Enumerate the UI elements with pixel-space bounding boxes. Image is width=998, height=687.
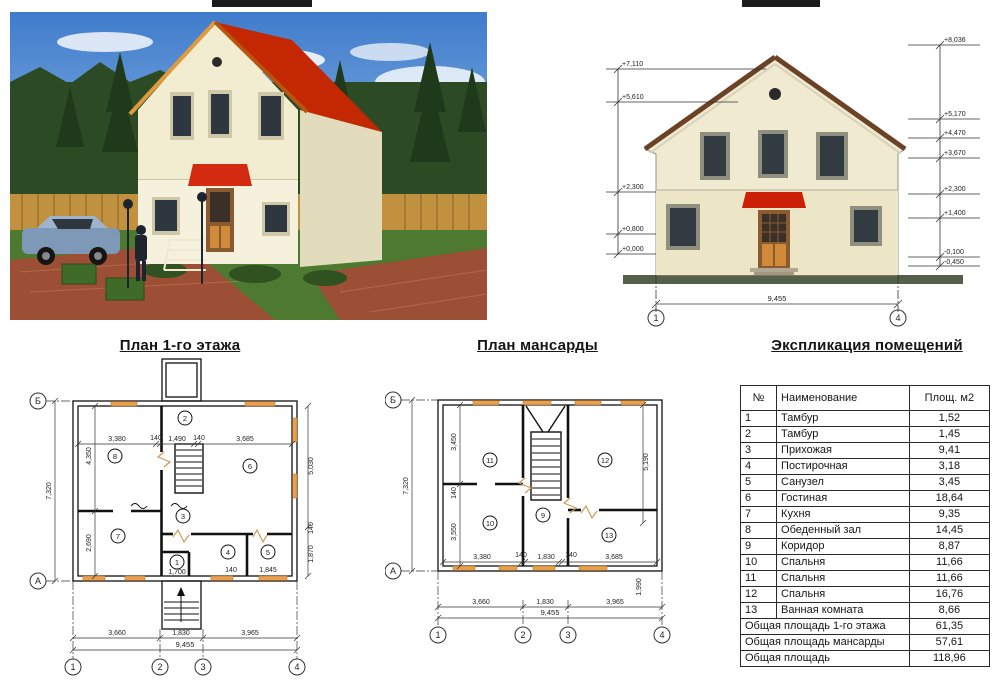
cell-name: Спальня <box>777 587 910 603</box>
attic-stairs <box>526 406 565 500</box>
room-number: 3 <box>181 512 185 521</box>
table-row: 5Санузел3,45 <box>741 475 990 491</box>
elev-mark: +8,036 <box>944 37 966 44</box>
cell-area: 14,45 <box>909 523 989 539</box>
room-number: 13 <box>605 531 613 540</box>
table-total-row: Общая площадь118,96 <box>741 651 990 667</box>
cell-name: Гостиная <box>777 491 910 507</box>
dim-label: 3,660 <box>472 599 490 606</box>
dim-label: 1,830 <box>537 554 555 561</box>
cell-num: 4 <box>741 459 777 475</box>
cropped-title-left <box>212 0 312 7</box>
axis-number: 1 <box>70 662 75 672</box>
cell-area: 11,66 <box>909 555 989 571</box>
room-number: 12 <box>601 456 609 465</box>
facade-door <box>758 210 790 268</box>
axis-number: 4 <box>659 630 664 640</box>
photo-3d-render <box>10 12 487 325</box>
axis-number: 1 <box>653 313 658 323</box>
elev-mark: +2,300 <box>622 184 644 191</box>
cell-name: Постирочная <box>777 459 910 475</box>
elev-mark: +7,110 <box>622 61 643 68</box>
cell-area: 8,66 <box>909 603 989 619</box>
dim-label: 1,490 <box>168 436 186 443</box>
dim-label: 1,845 <box>259 567 277 574</box>
elev-mark: +3,670 <box>944 150 966 157</box>
cell-name: Прихожая <box>777 443 910 459</box>
dim-label: 9,455 <box>176 640 195 649</box>
window-markers <box>453 401 645 571</box>
attic-walls <box>438 400 662 571</box>
axis-number: 4 <box>294 662 299 672</box>
attic-plan: 9 10 11 12 13 7,320 3,450 140 3,550 5,19… <box>385 360 690 660</box>
cell-area: 18,64 <box>909 491 989 507</box>
total-value: 118,96 <box>909 651 989 667</box>
cell-area: 3,18 <box>909 459 989 475</box>
dim-label: 1,990 <box>636 578 643 596</box>
axis-number: 3 <box>200 662 205 672</box>
cell-area: 8,87 <box>909 539 989 555</box>
cell-num: 5 <box>741 475 777 491</box>
elev-mark: +5,170 <box>944 111 966 118</box>
cell-area: 1,45 <box>909 427 989 443</box>
elev-mark: +2,300 <box>944 186 966 193</box>
col-header-num: № <box>741 386 777 411</box>
table-row: 8Обеденный зал14,45 <box>741 523 990 539</box>
dim-label: 140 <box>225 567 237 574</box>
attic-rooms: 9 10 11 12 13 <box>483 453 616 542</box>
dim-label: 140 <box>308 522 315 534</box>
table-row: 11Спальня11,66 <box>741 571 990 587</box>
cell-num: 8 <box>741 523 777 539</box>
table-row: 1Тамбур1,52 <box>741 411 990 427</box>
explication-table: № Наименование Площ. м2 1Тамбур1,52 2Там… <box>740 385 990 667</box>
dim-label: 2,690 <box>86 534 93 552</box>
room-number: 10 <box>486 519 494 528</box>
axis-number: 2 <box>157 662 162 672</box>
cell-name: Санузел <box>777 475 910 491</box>
table-row: 4Постирочная3,18 <box>741 459 990 475</box>
total-value: 61,35 <box>909 619 989 635</box>
dim-label: 3,660 <box>108 630 126 637</box>
dim-label: 140 <box>150 435 162 442</box>
dim-label: 3,965 <box>606 599 624 606</box>
dim-label: 7,320 <box>403 477 410 495</box>
elevation-labels-right: +8,036 +5,170 +4,470 +3,670 +2,300 +1,40… <box>944 37 966 266</box>
elev-mark: -0,450 <box>944 259 964 266</box>
axis-letter: Б <box>35 396 41 406</box>
dim-label: 1,870 <box>308 545 315 563</box>
dim-label: 9,455 <box>541 608 560 617</box>
table-row: 12Спальня16,76 <box>741 587 990 603</box>
cell-num: 3 <box>741 443 777 459</box>
table-row: 3Прихожая9,41 <box>741 443 990 459</box>
axis-number: 3 <box>565 630 570 640</box>
dim-label: 1,700 <box>168 569 186 576</box>
dim-label: 4,350 <box>86 447 93 465</box>
cell-num: 12 <box>741 587 777 603</box>
attic-windows <box>170 90 284 140</box>
facade-width-label: 9,455 <box>768 294 787 303</box>
cell-name: Тамбур <box>777 427 910 443</box>
axis-number: 4 <box>895 313 900 323</box>
cell-name: Тамбур <box>777 411 910 427</box>
dim-label: 3,685 <box>605 554 623 561</box>
cell-area: 3,45 <box>909 475 989 491</box>
total-label: Общая площадь мансарды <box>741 635 910 651</box>
facade-drawing: +7,110 +5,610 +2,300 +0,800 +0,000 +8,03… <box>588 12 993 332</box>
table-header-row: № Наименование Площ. м2 <box>741 386 990 411</box>
total-label: Общая площадь <box>741 651 910 667</box>
photo-3d-scene <box>10 12 487 320</box>
room-number: 4 <box>226 548 230 557</box>
elev-mark: +5,610 <box>622 94 644 101</box>
attic-axes: 1 2 3 4 Б А <box>385 392 670 643</box>
elev-mark: +4,470 <box>944 130 966 137</box>
elev-mark: +0,800 <box>622 226 644 233</box>
table-row: 6Гостиная18,64 <box>741 491 990 507</box>
elev-mark: -0,100 <box>944 249 964 256</box>
explication-section: Экспликация помещений № Наименование Пло… <box>740 337 994 667</box>
room-number: 11 <box>486 456 494 465</box>
dim-label: 3,685 <box>236 436 254 443</box>
room-number: 9 <box>541 511 545 520</box>
facade-house <box>645 57 905 275</box>
facade-awning <box>742 192 806 208</box>
axis-number: 1 <box>435 630 440 640</box>
dim-label: 140 <box>565 552 577 559</box>
cell-num: 11 <box>741 571 777 587</box>
ground-strip <box>623 275 963 284</box>
total-label: Общая площадь 1-го этажа <box>741 619 910 635</box>
facade-attic-windows <box>700 130 848 180</box>
elev-mark: +0,000 <box>622 246 644 253</box>
cell-name: Кухня <box>777 507 910 523</box>
cropped-title-right <box>742 0 820 7</box>
elev-mark: +1,400 <box>944 210 966 217</box>
dim-label: 3,450 <box>451 433 458 451</box>
table-row: 10Спальня11,66 <box>741 555 990 571</box>
table-total-row: Общая площадь мансарды57,61 <box>741 635 990 651</box>
explication-title: Экспликация помещений <box>740 337 994 354</box>
cell-area: 1,52 <box>909 411 989 427</box>
cell-area: 9,35 <box>909 507 989 523</box>
total-value: 57,61 <box>909 635 989 651</box>
attic-section: План мансарды <box>385 337 690 665</box>
cell-name: Спальня <box>777 555 910 571</box>
attic-bottom-dims <box>401 400 665 626</box>
entrance-awning <box>188 164 252 186</box>
cell-area: 9,41 <box>909 443 989 459</box>
dim-label: 3,550 <box>451 523 458 541</box>
floor1-rooms: 1 2 3 4 5 6 7 8 <box>108 411 275 569</box>
axis-letter: Б <box>390 395 396 405</box>
room-number: 2 <box>183 414 187 423</box>
floor1-section: План 1-го этажа <box>25 337 335 686</box>
room-number: 7 <box>116 532 120 541</box>
floor1-walls <box>73 359 297 629</box>
cell-num: 9 <box>741 539 777 555</box>
cell-num: 2 <box>741 427 777 443</box>
dim-label: 5,030 <box>308 457 315 475</box>
dim-label: 3,965 <box>241 630 259 637</box>
room-number: 6 <box>248 462 252 471</box>
cell-num: 7 <box>741 507 777 523</box>
elevation-labels-left: +7,110 +5,610 +2,300 +0,800 +0,000 <box>622 61 644 253</box>
dim-label: 1,830 <box>536 599 554 606</box>
cell-area: 11,66 <box>909 571 989 587</box>
floor1-plan: 1 2 3 4 5 6 7 8 3,380 140 1,490 140 <box>25 356 335 681</box>
floor1-partitions <box>78 406 292 576</box>
cell-num: 10 <box>741 555 777 571</box>
col-header-name: Наименование <box>777 386 910 411</box>
axis-number: 2 <box>520 630 525 640</box>
gable-vent <box>769 88 781 100</box>
attic-dim-lines <box>409 397 660 574</box>
room-number: 1 <box>175 558 179 567</box>
cell-name: Спальня <box>777 571 910 587</box>
break-symbols <box>131 504 187 509</box>
table-row: 7Кухня9,35 <box>741 507 990 523</box>
cell-name: Ванная комната <box>777 603 910 619</box>
dim-label: 140 <box>451 487 458 499</box>
dim-label: 3,380 <box>473 554 491 561</box>
dim-label: 1,830 <box>172 630 190 637</box>
table-row: 2Тамбур1,45 <box>741 427 990 443</box>
cell-num: 1 <box>741 411 777 427</box>
dim-label: 140 <box>515 552 527 559</box>
dim-label: 140 <box>193 435 205 442</box>
cell-name: Обеденный зал <box>777 523 910 539</box>
floor1-title: План 1-го этажа <box>25 337 335 354</box>
room-number: 8 <box>113 452 117 461</box>
cell-num: 6 <box>741 491 777 507</box>
attic-title: План мансарды <box>385 337 690 354</box>
table-total-row: Общая площадь 1-го этажа61,35 <box>741 619 990 635</box>
table-row: 13Ванная комната8,66 <box>741 603 990 619</box>
col-header-area: Площ. м2 <box>909 386 989 411</box>
room-number: 5 <box>266 548 270 557</box>
table-row: 9Коридор8,87 <box>741 539 990 555</box>
dim-label: 7,320 <box>46 482 53 500</box>
dim-label: 3,380 <box>108 436 126 443</box>
cell-name: Коридор <box>777 539 910 555</box>
axis-letter: А <box>35 576 41 586</box>
dim-label: 5,190 <box>643 453 650 471</box>
cell-num: 13 <box>741 603 777 619</box>
cell-area: 16,76 <box>909 587 989 603</box>
axis-letter: А <box>390 566 396 576</box>
